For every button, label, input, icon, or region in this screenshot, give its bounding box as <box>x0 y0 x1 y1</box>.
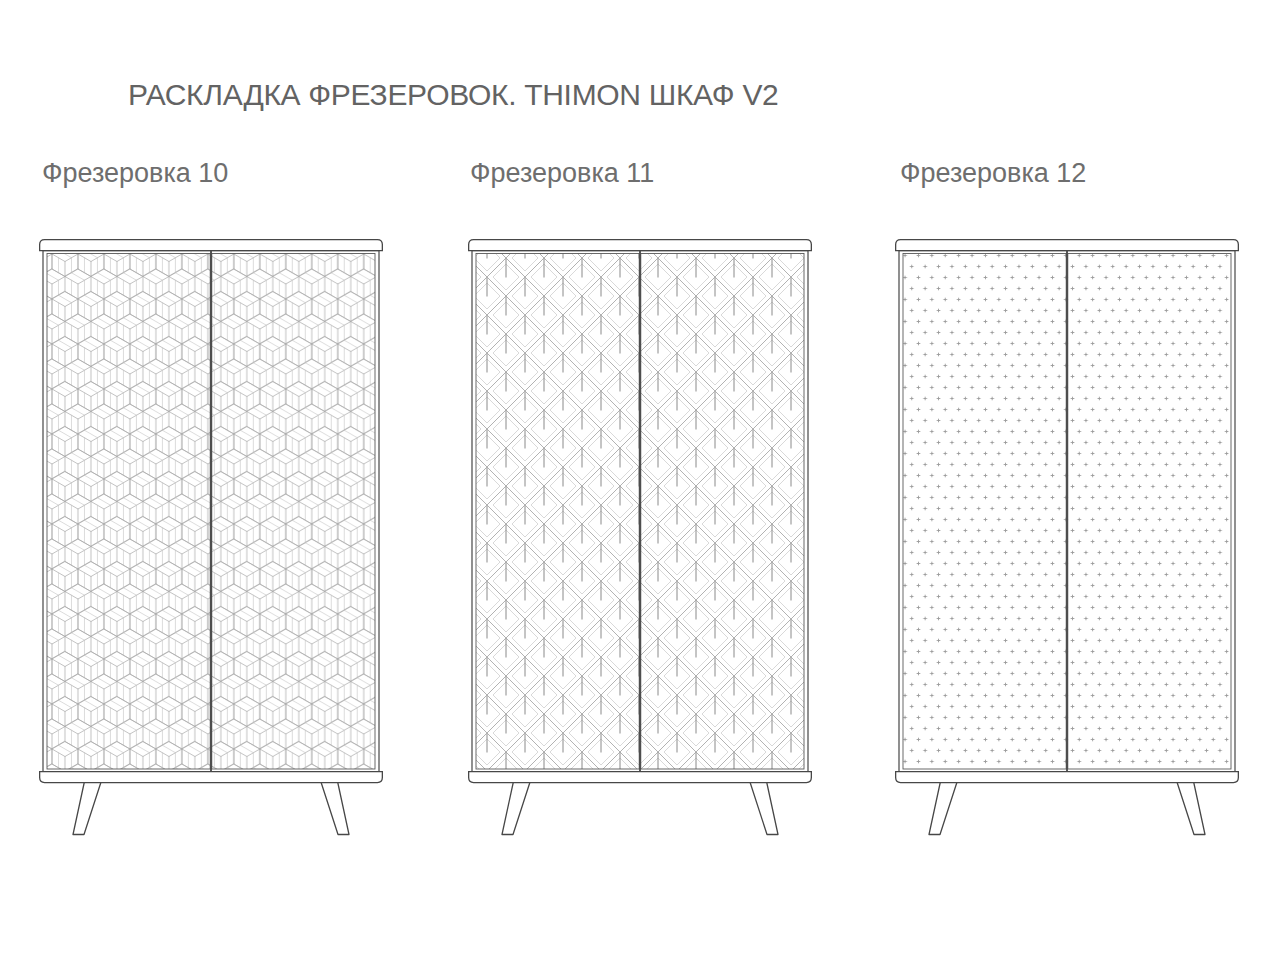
page-title: РАСКЛАДКА ФРЕЗЕРОВОК. THIMON ШКАФ V2 <box>128 78 778 112</box>
cabinet-drawing-10 <box>39 239 383 839</box>
cabinet-10-svg <box>39 239 383 839</box>
cabinet-12-svg <box>895 239 1239 839</box>
cabinet-legs <box>502 779 778 835</box>
cabinet-11-svg <box>468 239 812 839</box>
cabinet-left-door <box>903 254 1066 770</box>
cabinet-left-door <box>476 254 639 770</box>
figure-label-10: Фрезеровка 10 <box>42 158 228 189</box>
cabinet-right-door <box>641 254 804 770</box>
figure-label-12: Фрезеровка 12 <box>900 158 1086 189</box>
cabinet-legs <box>73 779 349 835</box>
figure-label-11: Фрезеровка 11 <box>470 158 654 189</box>
cabinet-left-door <box>47 254 210 770</box>
cabinet-drawing-11 <box>468 239 812 839</box>
cabinet-drawing-12 <box>895 239 1239 839</box>
cabinet-legs <box>929 779 1205 835</box>
cabinet-right-door <box>1068 254 1231 770</box>
cabinet-right-door <box>212 254 375 770</box>
